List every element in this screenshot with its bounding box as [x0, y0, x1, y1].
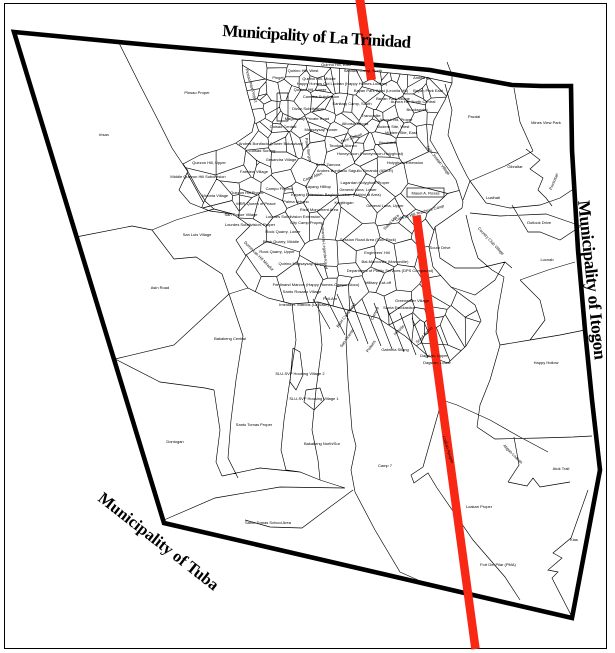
svg-text:Pacdal: Pacdal — [468, 114, 480, 119]
svg-text:Kagitingan: Kagitingan — [335, 200, 354, 205]
svg-text:Lourdes Subdivision, Proper: Lourdes Subdivision, Proper — [225, 222, 276, 227]
svg-text:Palma Urbano: Palma Urbano — [283, 199, 309, 204]
svg-text:Bayan Park East: Bayan Park East — [413, 88, 444, 93]
svg-text:Happy Hollow: Happy Hollow — [534, 360, 559, 365]
svg-text:Dagsian, Upper: Dagsian, Upper — [420, 353, 448, 358]
svg-text:Phil-Am: Phil-Am — [323, 296, 338, 301]
svg-text:Aurora Hill, North Central: Aurora Hill, North Central — [391, 99, 436, 104]
svg-text:Quirino Magsaysay, Upper: Quirino Magsaysay, Upper — [278, 261, 326, 266]
svg-text:Brookside: Brookside — [379, 140, 398, 145]
svg-text:Santo Tomas Proper: Santo Tomas Proper — [236, 422, 273, 427]
svg-text:Rock Quarry, Middle: Rock Quarry, Middle — [263, 239, 300, 244]
svg-text:Gabriela Silang: Gabriela Silang — [381, 347, 408, 352]
svg-text:Camp 7: Camp 7 — [378, 463, 393, 468]
svg-text:Ambiong: Ambiong — [413, 75, 429, 80]
svg-text:Gibraltar: Gibraltar — [507, 164, 523, 169]
svg-text:Lourdes Subdivision Extension: Lourdes Subdivision Extension — [266, 214, 321, 219]
svg-text:Mines View Park: Mines View Park — [531, 120, 561, 125]
svg-text:Quezon Hill Proper: Quezon Hill Proper — [230, 190, 264, 195]
svg-text:Petra Zamora: Petra Zamora — [316, 162, 341, 167]
svg-text:Bakakeng Central: Bakakeng Central — [214, 336, 246, 341]
svg-text:Aurora Hill, Proper: Aurora Hill, Proper — [380, 117, 414, 122]
svg-text:Dizon Subdivision: Dizon Subdivision — [292, 106, 324, 111]
svg-text:Department of Public Services: Department of Public Services (DPS Compo… — [347, 268, 434, 273]
svg-text:General Luna, Upper: General Luna, Upper — [366, 203, 404, 208]
svg-text:Modern Site, East: Modern Site, East — [385, 130, 418, 135]
svg-text:Ferdinand Marcos (Happy Homes-: Ferdinand Marcos (Happy Homes-Campo Sioc… — [273, 282, 360, 287]
svg-text:Middle Quezon Hill Subdivision: Middle Quezon Hill Subdivision — [170, 174, 225, 179]
svg-text:Rock Quarry, Lower: Rock Quarry, Lower — [265, 229, 301, 234]
svg-text:Lagardan Holyghost Proper: Lagardan Holyghost Proper — [341, 180, 391, 185]
svg-text:Pinget: Pinget — [272, 75, 284, 80]
svg-text:Loakan Proper: Loakan Proper — [466, 504, 493, 509]
svg-text:Andres Bonifacio (Lower Bokawk: Andres Bonifacio (Lower Bokawkan) — [239, 141, 304, 146]
svg-text:Atok Trail: Atok Trail — [553, 466, 570, 471]
svg-text:Victoria Village: Victoria Village — [202, 193, 229, 198]
svg-text:Military Cut-off: Military Cut-off — [365, 280, 392, 285]
svg-text:Dontogan: Dontogan — [166, 439, 183, 444]
svg-text:MRR-Queen of Peace: MRR-Queen of Peace — [236, 201, 276, 206]
svg-text:San Roque Village: San Roque Village — [224, 212, 258, 217]
svg-text:Magsaysay Private Road: Magsaysay Private Road — [285, 116, 329, 121]
svg-text:Lualhati: Lualhati — [486, 195, 500, 200]
svg-text:Gesandra Village: Gesandra Village — [266, 157, 297, 162]
svg-text:Outlook Drive: Outlook Drive — [527, 220, 552, 225]
svg-text:Campo Filipino: Campo Filipino — [266, 186, 293, 191]
svg-text:Kias: Kias — [570, 537, 578, 542]
svg-text:Rock Quarry, Upper: Rock Quarry, Upper — [259, 249, 295, 254]
svg-text:Greenwater Village: Greenwater Village — [395, 298, 430, 303]
svg-text:General Luna, Lower: General Luna, Lower — [339, 187, 377, 192]
svg-text:Sanitary Camp, South: Sanitary Camp, South — [332, 101, 371, 106]
svg-text:Bayan Park West (Leonila Hill): Bayan Park West (Leonila Hill) — [354, 88, 409, 93]
svg-text:Sanitary Camp, North: Sanitary Camp, North — [344, 68, 382, 73]
svg-text:Santo Rosario Village: Santo Rosario Village — [283, 289, 322, 294]
svg-text:South Drive: South Drive — [430, 245, 452, 250]
svg-text:Fort Del Pilar (PMA): Fort Del Pilar (PMA) — [480, 562, 516, 567]
svg-text:Santo Tomas School Area: Santo Tomas School Area — [245, 520, 292, 525]
svg-text:SLU-SVP Housing Village 1: SLU-SVP Housing Village 1 — [289, 396, 339, 401]
svg-text:Kayang Hilltop: Kayang Hilltop — [305, 184, 332, 189]
svg-text:Magsaysay, Lower: Magsaysay, Lower — [304, 127, 338, 132]
svg-text:Holyghost Extension: Holyghost Extension — [387, 160, 423, 165]
svg-text:Asin Road: Asin Road — [151, 285, 169, 290]
svg-text:Engineers' Hill: Engineers' Hill — [364, 250, 390, 255]
svg-text:Quezon Hill, Upper: Quezon Hill, Upper — [192, 160, 226, 165]
svg-text:Dagsian, Lower: Dagsian, Lower — [423, 360, 451, 365]
svg-text:Trancoville: Trancoville — [361, 113, 381, 118]
svg-text:Santa Escolastica: Santa Escolastica — [383, 305, 416, 310]
svg-text:Fairview Village: Fairview Village — [240, 169, 269, 174]
svg-text:Bal-Marcoville (Marcoville): Bal-Marcoville (Marcoville) — [362, 259, 410, 264]
svg-text:Brookspoint: Brookspoint — [406, 107, 428, 112]
svg-text:San Luis Village: San Luis Village — [183, 232, 212, 237]
svg-text:Irisan: Irisan — [99, 132, 109, 137]
svg-text:Quirino Hill, East: Quirino Hill, East — [321, 62, 352, 67]
svg-text:Mauel A. Roxas: Mauel A. Roxas — [411, 191, 439, 196]
svg-text:Teodora Alonzo: Teodora Alonzo — [329, 143, 357, 148]
svg-text:SLU-SVP Housing Village 2: SLU-SVP Housing Village 2 — [275, 371, 325, 376]
svg-text:Andres Bonifacio Saguilo Fiman: Andres Bonifacio Saguilo Fimando (ABCR) — [317, 168, 394, 173]
svg-text:Happy Homes Old Lucban (Happy: Happy Homes Old Lucban (Happy Homes-Lucb… — [297, 81, 388, 86]
svg-text:Guisad Central: Guisad Central — [270, 124, 297, 129]
svg-text:City Camp Proper: City Camp Proper — [290, 220, 322, 225]
svg-text:Honeymoon (Honeymoon-Holyghost: Honeymoon (Honeymoon-Holyghost) — [337, 151, 404, 156]
svg-text:Camdas Subdivision: Camdas Subdivision — [303, 94, 339, 99]
svg-text:Imelda R. Marcos (La Salle): Imelda R. Marcos (La Salle) — [279, 302, 329, 307]
svg-text:Bakakeng North/Sur: Bakakeng North/Sur — [304, 441, 341, 446]
svg-text:Guisad Surong: Guisad Surong — [249, 148, 276, 153]
svg-text:Session Road Area (Gov. Pack): Session Road Area (Gov. Pack) — [340, 237, 397, 242]
svg-text:Lucnab: Lucnab — [540, 257, 554, 262]
svg-text:Alfonso Tabora: Alfonso Tabora — [342, 121, 369, 126]
svg-text:Modern Site, West: Modern Site, West — [377, 124, 411, 129]
svg-text:Rizal Monument Area: Rizal Monument Area — [300, 207, 339, 212]
svg-text:Quirino Hill, Lower: Quirino Hill, Lower — [294, 87, 327, 92]
svg-text:Kayang Extension-Bagiuo Lucban: Kayang Extension-Bagiuo Lucban (Mabini a… — [291, 192, 381, 197]
svg-text:Quirino Hill, West: Quirino Hill, West — [288, 68, 320, 73]
svg-text:Pinsao Proper: Pinsao Proper — [184, 90, 210, 95]
